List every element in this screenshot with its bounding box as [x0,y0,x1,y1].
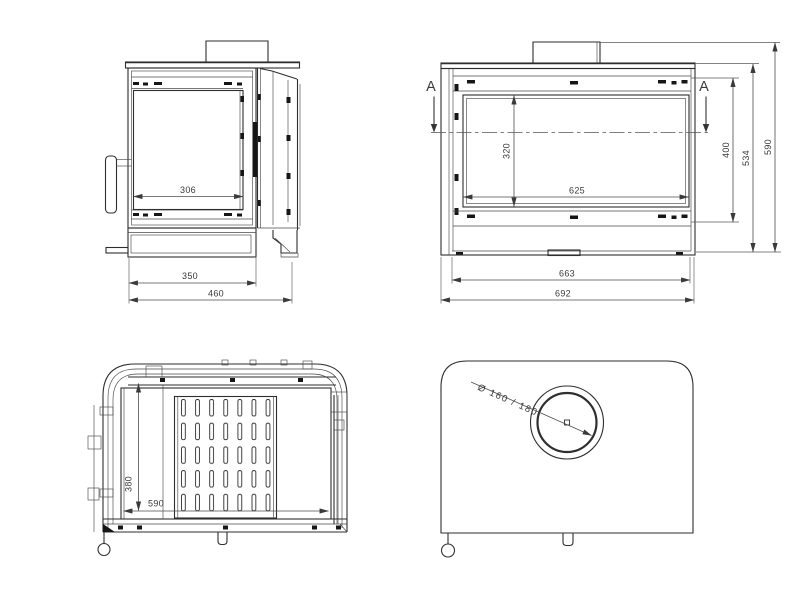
stove-technical-drawing: 306 350 460 [0,0,800,600]
centre-tab-section [218,532,227,545]
rear-leg-side [273,230,298,257]
dim-label-glass-depth: 306 [180,185,196,195]
base-drawer-side [106,228,256,257]
section-marker-right: A [699,79,709,133]
front-frame-fixings-top [467,80,688,85]
frame-fixings-bottom [133,213,242,217]
dim-label-frame-height: 400 [721,142,731,158]
dim-label-firebox-depth: 380 [124,476,134,492]
dim-label-body-height: 534 [741,150,751,166]
flue-stub-side [206,41,268,62]
dim-label-overall-depth: 460 [208,289,224,299]
dim-label-overall-width: 692 [555,289,571,299]
section-label-a-right: A [699,79,709,95]
section-arrow-left [431,124,437,133]
dim-label-body-depth: 350 [182,271,198,281]
right-side-brackets [331,392,347,430]
front-view-dimensions: 320 625 400 534 590 663 692 [441,43,781,304]
body-front [441,69,695,256]
section-label-a-left: A [426,79,436,95]
section-bottom-band [103,519,347,532]
dim-label-glass-width: 625 [569,186,585,196]
section-arrow-right [703,124,709,133]
technical-drawing-sheet: 306 350 460 [0,0,800,600]
centre-tab-top-view [563,533,573,546]
front-view: A A 320 625 400 534 590 [426,42,781,304]
frame-fixings-top [133,82,242,86]
flue-stub-front [533,42,600,63]
flue-collar [531,386,604,459]
side-view: 306 350 460 [106,41,301,304]
dim-label-body-width: 663 [559,269,575,279]
dim-label-glass-height: 320 [502,143,512,159]
firebox-grate [175,397,277,519]
door-hinges-front [455,84,459,215]
dim-label-overall-height: 590 [763,139,773,155]
front-leg-top-view [442,533,455,557]
dim-label-firebox-width: 590 [148,499,164,509]
body-side [128,68,256,228]
section-view-a-a: 380 590 [88,360,347,556]
dim-label-flue-diameter: Ø 160 / 180 [476,382,540,419]
front-frame-fixings-bottom [467,215,688,220]
left-door-clips [88,407,113,500]
top-view: Ø 160 / 180 [441,361,693,557]
section-marker-left: A [426,79,437,133]
side-panel [258,69,301,231]
side-view-dimensions: 306 350 460 [129,185,292,304]
ash-lip [106,248,128,254]
top-edge-clips [146,360,312,377]
front-leg-section [98,532,110,556]
door-hinge-slot [253,122,257,177]
